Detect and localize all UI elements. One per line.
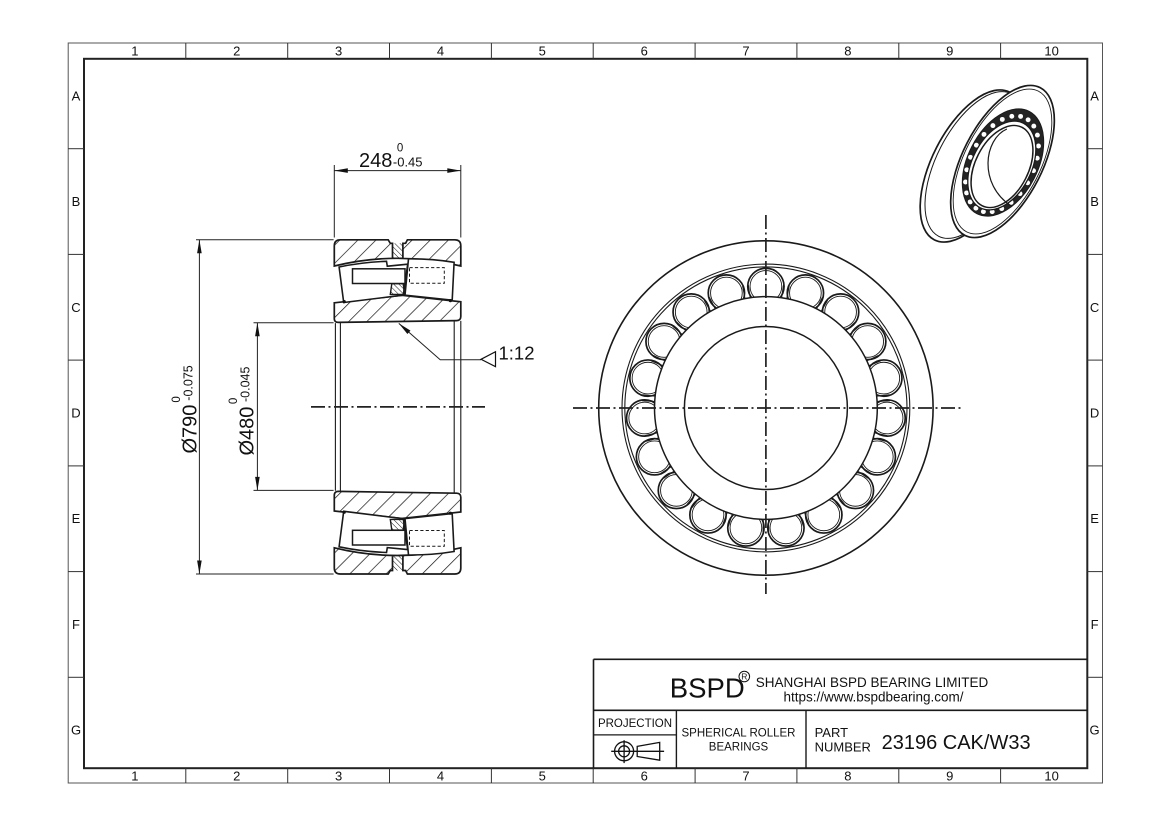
svg-text:2: 2	[233, 44, 240, 59]
svg-text:23196 CAK/W33: 23196 CAK/W33	[882, 732, 1031, 754]
svg-text:F: F	[1091, 617, 1099, 632]
svg-text:SPHERICAL ROLLER: SPHERICAL ROLLER	[682, 727, 796, 739]
svg-text:9: 9	[946, 768, 953, 783]
svg-text:BSPD: BSPD	[670, 673, 745, 704]
svg-text:5: 5	[539, 768, 546, 783]
svg-text:-0.045: -0.045	[239, 367, 253, 402]
svg-text:C: C	[71, 300, 80, 315]
svg-text:1: 1	[131, 44, 138, 59]
svg-text:0: 0	[397, 143, 403, 155]
svg-text:PROJECTION: PROJECTION	[598, 718, 672, 730]
svg-text:B: B	[72, 194, 81, 209]
svg-text:PART: PART	[815, 725, 849, 740]
svg-text:10: 10	[1044, 768, 1058, 783]
svg-text:5: 5	[539, 44, 546, 59]
svg-text:6: 6	[641, 44, 648, 59]
svg-text:7: 7	[742, 768, 749, 783]
svg-text:F: F	[72, 617, 80, 632]
svg-text:E: E	[72, 511, 81, 526]
svg-text:1: 1	[131, 768, 138, 783]
svg-text:B: B	[1090, 194, 1099, 209]
svg-text:Ø790: Ø790	[180, 405, 202, 454]
svg-text:-0.075: -0.075	[182, 365, 196, 400]
svg-text:Ø480: Ø480	[237, 407, 259, 456]
svg-text:https://www.bspdbearing.com/: https://www.bspdbearing.com/	[783, 690, 963, 705]
svg-text:NUMBER: NUMBER	[815, 740, 871, 755]
svg-text:10: 10	[1044, 44, 1058, 59]
svg-text:G: G	[71, 723, 81, 738]
svg-text:SHANGHAI BSPD BEARING LIMITED: SHANGHAI BSPD BEARING LIMITED	[756, 675, 989, 690]
svg-text:8: 8	[844, 44, 851, 59]
svg-text:A: A	[72, 88, 81, 103]
svg-text:7: 7	[742, 44, 749, 59]
svg-text:4: 4	[437, 44, 444, 59]
svg-text:BEARINGS: BEARINGS	[709, 741, 769, 753]
svg-text:4: 4	[437, 768, 444, 783]
svg-text:R: R	[741, 672, 747, 682]
svg-text:6: 6	[641, 768, 648, 783]
svg-text:-0.45: -0.45	[393, 155, 423, 170]
svg-text:8: 8	[844, 768, 851, 783]
svg-text:2: 2	[233, 768, 240, 783]
svg-text:G: G	[1090, 723, 1100, 738]
svg-text:C: C	[1090, 300, 1099, 315]
svg-text:3: 3	[335, 44, 342, 59]
svg-text:A: A	[1090, 88, 1099, 103]
svg-text:D: D	[71, 406, 80, 421]
svg-text:D: D	[1090, 406, 1099, 421]
svg-text:E: E	[1090, 511, 1099, 526]
svg-text:3: 3	[335, 768, 342, 783]
svg-text:9: 9	[946, 44, 953, 59]
svg-text:248: 248	[359, 150, 392, 172]
svg-text:1:12: 1:12	[499, 343, 535, 364]
